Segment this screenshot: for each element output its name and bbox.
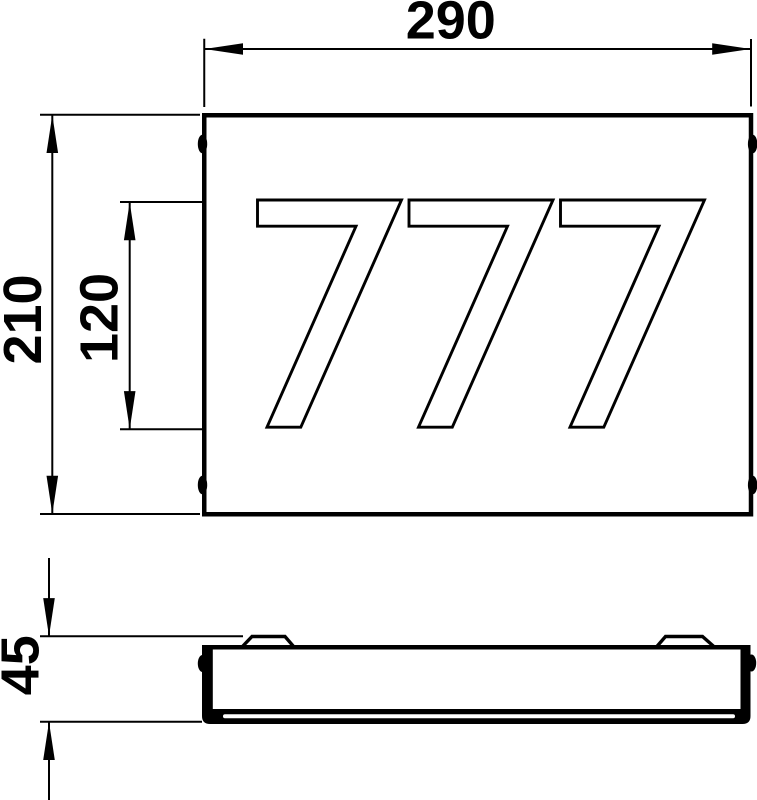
svg-text:120: 120: [69, 273, 129, 363]
svg-text:210: 210: [0, 274, 53, 364]
svg-text:290: 290: [406, 0, 496, 50]
svg-text:45: 45: [0, 635, 51, 695]
